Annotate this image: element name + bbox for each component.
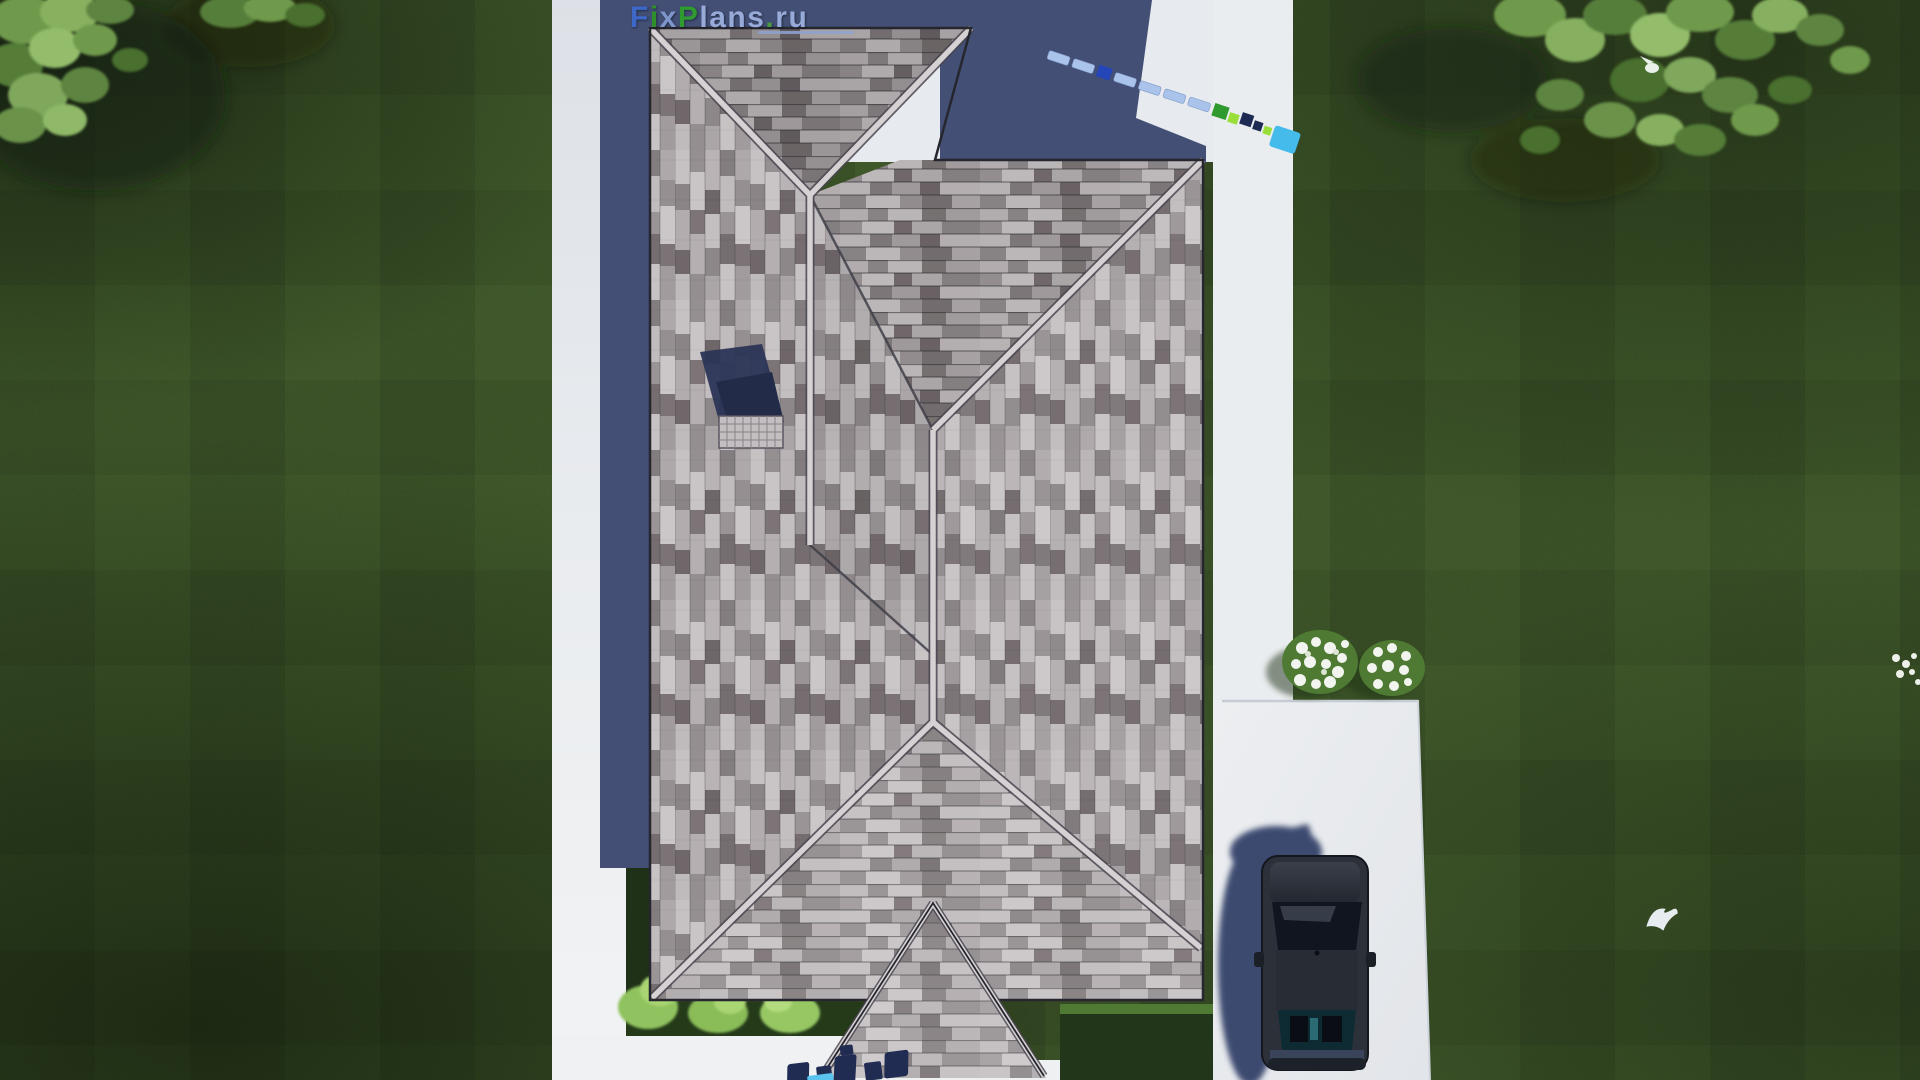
- logo-letter: F: [630, 1, 650, 35]
- car-mirror-right: [1366, 952, 1376, 967]
- logo-letter: s: [747, 1, 765, 35]
- logo-letter: P: [678, 1, 700, 35]
- logo-underline: [758, 31, 854, 34]
- logo-letter: u: [788, 1, 808, 35]
- car-roof: [1276, 950, 1358, 1010]
- scene-canvas: [0, 0, 1920, 1080]
- logo-letter: r: [775, 1, 788, 35]
- logo-letter: a: [709, 1, 727, 35]
- aerial-render: FixPlans.ru: [0, 0, 1920, 1080]
- logo-letter: i: [650, 1, 660, 35]
- car-mirror-left: [1254, 952, 1264, 967]
- car-group: [1218, 824, 1376, 1080]
- fixplans-logo: FixPlans.ru: [630, 1, 808, 35]
- logo-letter: l: [699, 1, 709, 35]
- logo-letter: x: [660, 1, 678, 35]
- logo-letter: .: [765, 1, 775, 35]
- flower-bush: [1282, 630, 1358, 694]
- logo-letter: n: [727, 1, 747, 35]
- car-hood: [1270, 862, 1360, 904]
- bottom-right-hedge: [1060, 1004, 1213, 1080]
- roof: [650, 28, 1203, 1078]
- flower-bush: [1359, 640, 1425, 696]
- car: [1254, 856, 1376, 1070]
